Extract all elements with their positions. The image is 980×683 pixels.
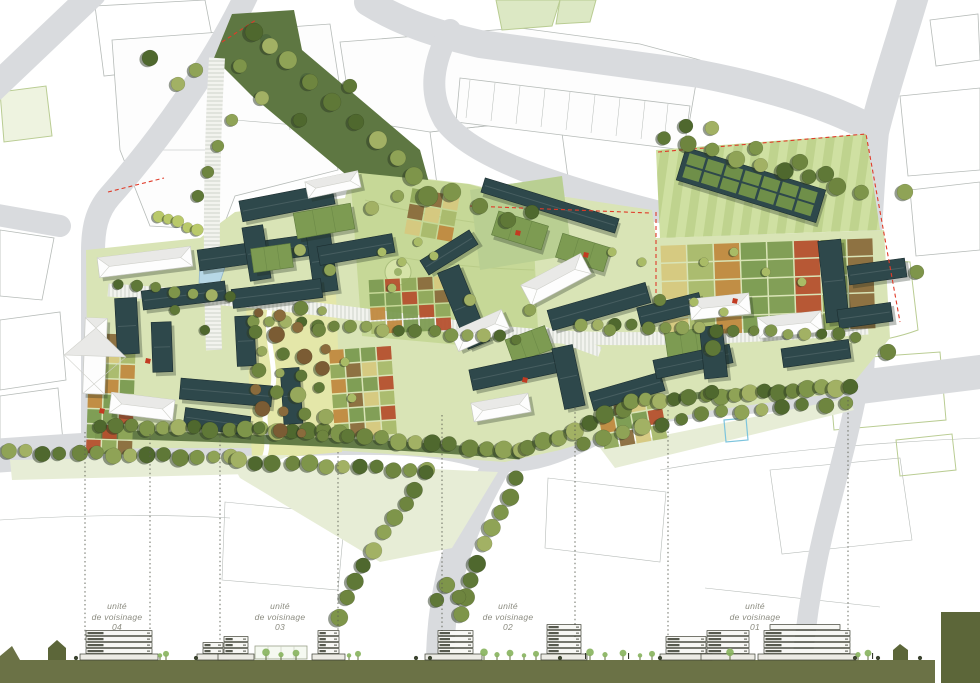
- section-tree-icon: [507, 650, 514, 660]
- play-equipment: [515, 230, 521, 236]
- tree-icon: [499, 489, 519, 507]
- masterplan-canvas: unité de voisinage 04 unité de voisinage…: [0, 0, 980, 683]
- section-tree-icon: [347, 653, 351, 660]
- corridor-footpath: [212, 58, 217, 350]
- unit-label-number: 03: [275, 622, 285, 633]
- context-garden: [556, 0, 596, 24]
- unit-label-line: de voisinage: [483, 612, 534, 623]
- road: [0, 214, 60, 226]
- section-house: [893, 644, 908, 660]
- section-building: [80, 631, 158, 660]
- unit-label-line: de voisinage: [255, 612, 306, 623]
- tree-icon: [703, 121, 719, 136]
- tree-icon: [491, 505, 508, 521]
- section-bush: [918, 656, 922, 660]
- section-building: [312, 631, 345, 660]
- unit-label-03: unité de voisinage 03: [255, 601, 306, 633]
- tree-icon: [894, 184, 913, 201]
- context-block: [930, 14, 980, 66]
- unit-label-number: 01: [750, 622, 760, 633]
- section-bush: [558, 656, 562, 660]
- unit-label-line: unité: [498, 601, 518, 612]
- play-equipment: [522, 377, 528, 383]
- meadow-circle-center: [394, 268, 402, 276]
- section-tree-icon: [602, 652, 607, 660]
- section-building: [218, 637, 254, 660]
- building-green-roof: [251, 243, 297, 277]
- section-tree-icon: [586, 649, 594, 660]
- unit-label-04: unité de voisinage 04: [92, 601, 143, 633]
- section-tree-icon: [533, 651, 539, 660]
- section-tree-icon: [649, 651, 655, 660]
- section-tree-icon: [638, 653, 642, 660]
- section-house: [48, 640, 66, 660]
- tree-icon: [344, 573, 364, 591]
- building-dark: [151, 322, 176, 377]
- section-tree-icon: [158, 653, 162, 660]
- tree-icon: [353, 558, 370, 574]
- play-equipment: [99, 408, 105, 414]
- unit-label-line: unité: [745, 601, 765, 612]
- unit-label-number: 04: [112, 622, 122, 633]
- context-block: [0, 312, 66, 390]
- tree-icon: [337, 590, 354, 606]
- section-bush: [658, 656, 662, 660]
- section-person: [872, 653, 873, 659]
- context-block: [545, 478, 666, 562]
- section-tree-icon: [620, 650, 627, 660]
- context-garden: [0, 86, 52, 142]
- context-garden: [496, 0, 560, 30]
- unit-label-line: unité: [270, 601, 290, 612]
- site-plan-svg: [0, 0, 980, 683]
- section-bush: [194, 656, 198, 660]
- unit-label-line: unité: [107, 601, 127, 612]
- context-block: [910, 182, 980, 256]
- road: [802, 388, 858, 665]
- section-bush: [853, 656, 857, 660]
- road: [0, 0, 93, 90]
- unit-label-line: de voisinage: [730, 612, 781, 623]
- section-bush: [428, 656, 432, 660]
- section-tree-icon: [163, 651, 169, 660]
- play-equipment: [583, 252, 589, 258]
- unit-label-01: unité de voisinage 01: [730, 601, 781, 633]
- section-bush: [876, 656, 880, 660]
- section-person: [585, 653, 586, 659]
- play-equipment: [732, 298, 738, 304]
- context-block: [0, 230, 54, 300]
- section-person: [628, 653, 629, 659]
- unit-label-02: unité de voisinage 02: [483, 601, 534, 633]
- unit-label-line: de voisinage: [92, 612, 143, 623]
- section-bush: [74, 656, 78, 660]
- tree-icon: [475, 536, 493, 552]
- section-bush: [414, 656, 418, 660]
- tree-icon: [506, 471, 523, 487]
- section-tall-block: [941, 612, 980, 683]
- section-tree-icon: [522, 653, 526, 660]
- unit-label-number: 02: [503, 622, 513, 633]
- section-building: [541, 625, 587, 660]
- context-street-line: [0, 516, 230, 520]
- building-dark: [115, 297, 143, 358]
- section-tree-icon: [355, 651, 361, 660]
- context-block: [900, 88, 980, 176]
- section-tree-icon: [494, 652, 499, 660]
- play-equipment: [145, 358, 151, 364]
- section-building: [701, 631, 755, 660]
- section-tree-icon: [865, 650, 872, 660]
